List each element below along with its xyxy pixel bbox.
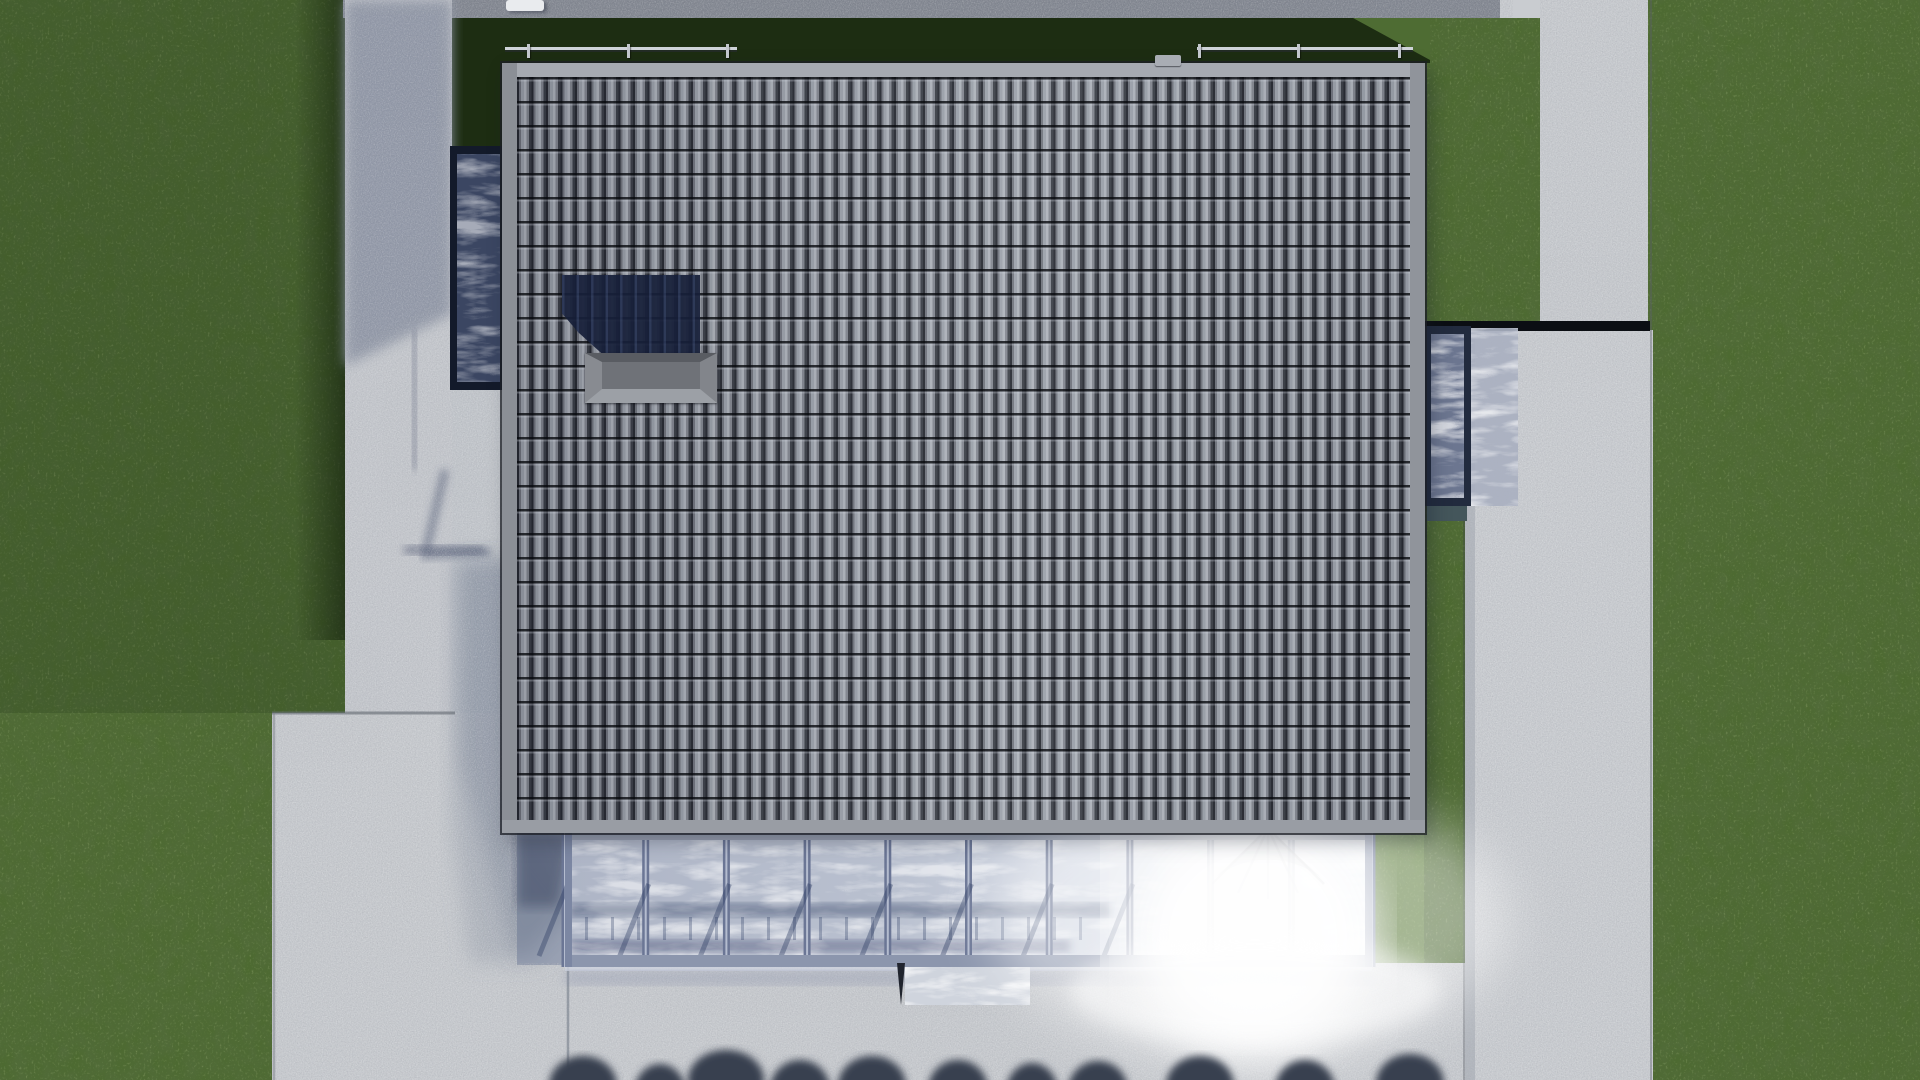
- canopy-mullion-highlight: [806, 833, 808, 967]
- fence-shadow-tick: [689, 917, 692, 940]
- aerial-house-render-scene: [0, 0, 1920, 1080]
- right-glass-bay: [1424, 326, 1518, 506]
- fence-shadow-tick: [767, 917, 770, 940]
- railing-post: [726, 44, 729, 58]
- fence-shadow-tick: [975, 917, 978, 940]
- grass-edge-shadow: [295, 0, 345, 640]
- roof-fascia-top: [502, 63, 1425, 77]
- roof-fascia-bottom: [502, 820, 1425, 833]
- railing-post: [1297, 44, 1300, 58]
- left-skylight: [450, 146, 507, 390]
- fence-shadow-tick: [819, 917, 822, 940]
- roof-fascia-left: [502, 63, 517, 833]
- canopy-mullion-highlight: [887, 833, 889, 967]
- fence-shadow-tick: [923, 917, 926, 940]
- bay-under-shadow: [1427, 504, 1467, 521]
- house-roof: [502, 63, 1425, 833]
- roof-fascia-right: [1410, 63, 1425, 833]
- canopy-mullion-highlight: [968, 833, 970, 967]
- canopy-mullion-highlight: [725, 833, 727, 967]
- fence-shadow-tick: [897, 917, 900, 940]
- railing-bar: [1197, 47, 1413, 50]
- fence-shadow-tick: [611, 917, 614, 940]
- roof-vent: [1155, 55, 1181, 66]
- canopy-mullion-highlight: [645, 833, 647, 967]
- railing-post: [527, 44, 530, 58]
- railing-post: [1398, 44, 1401, 58]
- grass-topleft-tint: [0, 0, 345, 713]
- house-shadow-grass-band-top: [450, 12, 1430, 63]
- fence-shadow-tick: [585, 917, 588, 940]
- railing-post: [1198, 44, 1201, 58]
- roof-hatch-cap: [585, 353, 717, 403]
- railing-bar: [505, 47, 737, 50]
- fence-shadow-tick: [663, 917, 666, 940]
- fence-shadow-tick: [637, 917, 640, 940]
- fence-shadow-tick: [845, 917, 848, 940]
- railing-post: [627, 44, 630, 58]
- roof-tile-field: [517, 77, 1410, 820]
- fence-shadow-tick: [741, 917, 744, 940]
- white-bench-object: [506, 0, 544, 11]
